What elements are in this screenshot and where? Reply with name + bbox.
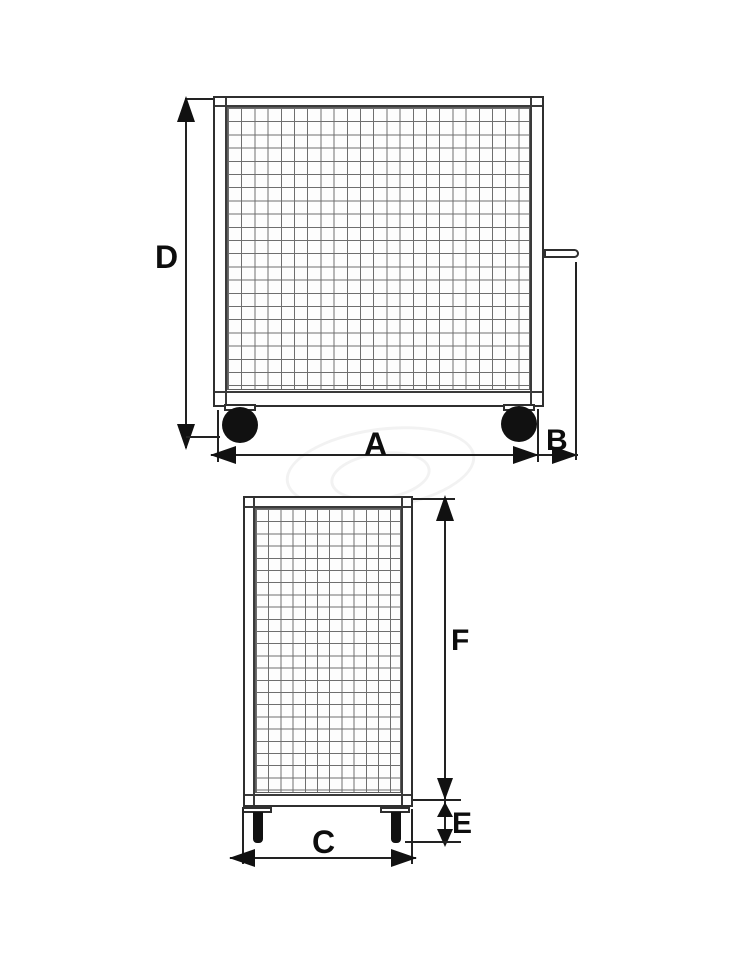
caster-wheel-right [501, 406, 537, 442]
arrow-right-icon [513, 446, 539, 464]
leg-right [391, 812, 401, 843]
arrow-up-icon [436, 495, 454, 521]
dim-d-line [185, 98, 187, 448]
dim-label-f: F [451, 626, 469, 656]
dim-d-ext-bottom-line [186, 436, 220, 438]
arrow-up-icon [177, 96, 195, 122]
arrow-left-icon [210, 446, 236, 464]
dim-e-ext-bottom-line [405, 841, 461, 843]
dim-f-line [444, 498, 446, 800]
side-right-upright-line [530, 98, 532, 405]
dim-label-c: C [312, 826, 335, 858]
dimension-diagram: D A B [0, 0, 750, 962]
dim-b-ext-line [575, 262, 577, 460]
side-bottom-rail-line [215, 391, 542, 393]
caster-wheel-left [222, 407, 258, 443]
arrow-up-icon [437, 802, 453, 817]
dim-f-ext-bottom-line [413, 799, 461, 801]
front-right-upright-line [401, 498, 403, 805]
leg-left [253, 812, 263, 843]
arrow-down-icon [437, 778, 453, 800]
arrow-right-icon [391, 849, 417, 867]
handle-bar [544, 249, 579, 258]
dim-label-a: A [364, 428, 387, 460]
front-mesh-panel [255, 508, 401, 793]
arrow-left-icon [229, 849, 255, 867]
arrow-down-icon [437, 829, 453, 847]
side-mesh-panel [227, 107, 530, 390]
front-bottom-rail-line [245, 794, 411, 796]
dim-label-d: D [155, 241, 178, 273]
dim-label-b: B [546, 426, 568, 456]
dim-label-e: E [452, 809, 472, 839]
